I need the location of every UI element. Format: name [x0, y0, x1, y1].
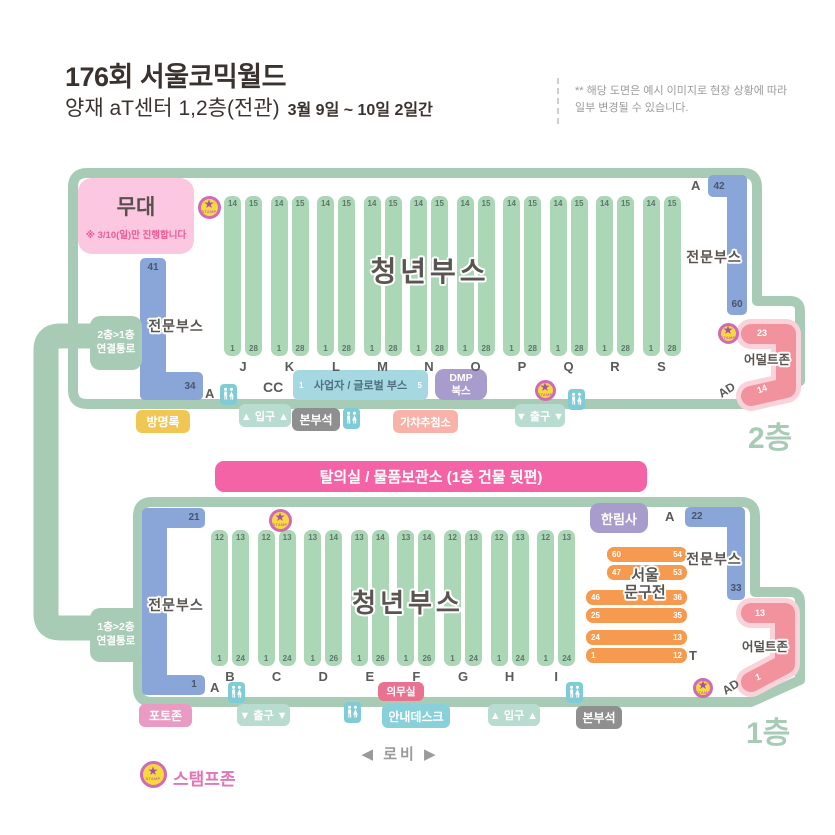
stationery-bar-num-right: 35	[673, 611, 682, 620]
booth-number-bottom: 1	[397, 654, 414, 663]
booth-number-top: 14	[596, 199, 613, 208]
floor2-booth-column-J-right: 1528	[245, 196, 262, 356]
floor1-column-letter-C: C	[258, 669, 296, 684]
floor1-label: 1층	[746, 708, 790, 752]
floor2-column-letter-K: K	[271, 359, 309, 374]
restroom-icon	[220, 384, 237, 405]
booth-number-bottom: 28	[292, 344, 309, 353]
booth-number-top: 15	[571, 199, 588, 208]
booth-number-bottom: 24	[279, 654, 296, 663]
pro-booth-1f-right-top-num: 22	[687, 511, 707, 522]
a-label-1f-left: A	[210, 680, 219, 695]
booth-number-bottom: 28	[524, 344, 541, 353]
floor2-column-letter-N: N	[410, 359, 448, 374]
stationery-bar-num-left: 60	[612, 550, 621, 559]
t-label: T	[689, 648, 697, 663]
booth-number-bottom: 26	[418, 654, 435, 663]
booth-number-top: 14	[372, 533, 389, 542]
booth-number-bottom: 28	[385, 344, 402, 353]
connector-label-1f-to-2f: 1층>2층연결통로	[90, 608, 142, 662]
photo-zone-box: 포토존	[139, 704, 192, 727]
hq-box-2f: 본부석	[292, 408, 340, 431]
floor2-booth-column-S-left: 141	[643, 196, 660, 356]
floor-map-canvas: 176회 서울코믹월드 양재 aT센터 1,2층(전관)3월 9일 ~ 10일 …	[0, 0, 835, 835]
stamp-zone-legend-label: 스탬프존	[173, 765, 236, 790]
stationery-bar-num-left: 24	[591, 633, 600, 642]
stationery-bar-num-right: 13	[673, 633, 682, 642]
booth-number-bottom: 1	[596, 344, 613, 353]
stationery-fair-label: 서울 문구전	[605, 567, 685, 602]
booth-number-bottom: 1	[537, 654, 554, 663]
stamp-star-glyph: ★	[698, 681, 709, 690]
booth-number-top: 13	[512, 533, 529, 542]
booth-number-bottom: 24	[232, 654, 249, 663]
hq-box-1f: 본부석	[576, 706, 622, 729]
restroom-glyph	[345, 410, 358, 427]
booth-number-bottom: 28	[617, 344, 634, 353]
pro-booth-2f-left-top-num: 41	[141, 262, 165, 273]
booth-number-top: 14	[418, 533, 435, 542]
floor1-booth-column-C-left: 121	[258, 530, 275, 666]
floor2-column-letter-P: P	[503, 359, 541, 374]
stage-area: 무대 ※ 3/10(일)만 진행합니다	[78, 178, 194, 254]
booth-number-top: 15	[617, 199, 634, 208]
guestbook-box: 방명록	[136, 410, 190, 433]
stage-label: 무대	[117, 191, 156, 221]
booth-number-top: 15	[524, 199, 541, 208]
pro-booth-1f-right-label: 전문부스	[674, 549, 754, 569]
stamp-word: STAMP	[202, 209, 217, 214]
business-global-booth: 1 사업자 / 글로벌 부스 5	[293, 370, 428, 400]
booth-number-top: 14	[271, 199, 288, 208]
floor1-column-letter-H: H	[491, 669, 529, 684]
lobby-label: ◀ 로비 ▶	[300, 743, 500, 764]
booth-number-top: 14	[317, 199, 334, 208]
stationery-bar-6: 112	[586, 648, 687, 663]
restroom-glyph	[570, 391, 583, 408]
booth-number-top: 15	[664, 199, 681, 208]
booth-number-top: 14	[550, 199, 567, 208]
booth-number-top: 13	[397, 533, 414, 542]
a-label-2f-right: A	[691, 178, 700, 193]
booth-number-top: 15	[431, 199, 448, 208]
connector-label-2f-to-1f: 2층>1층연결통로	[90, 316, 142, 370]
floor1-column-letter-D: D	[304, 669, 342, 684]
notice-line2: 일부 변경될 수 있습니다.	[575, 100, 787, 117]
stationery-bar-num-left: 1	[591, 651, 595, 660]
adult-zone-2f-label: 어덜트존	[736, 349, 798, 368]
booth-number-bottom: 26	[325, 654, 342, 663]
stationery-bar-5: 2413	[586, 630, 687, 645]
stationery-bar-4: 2535	[586, 608, 687, 623]
booth-number-bottom: 28	[478, 344, 495, 353]
booth-number-top: 12	[491, 533, 508, 542]
booth-number-top: 14	[643, 199, 660, 208]
pro-booth-2f-left-label: 전문부스	[136, 316, 216, 336]
booth-number-bottom: 24	[558, 654, 575, 663]
booth-number-top: 14	[503, 199, 520, 208]
a-label-1f-right: A	[665, 509, 674, 524]
booth-number-bottom: 1	[410, 344, 427, 353]
youth-booth-2f-label: 청년부스	[330, 250, 530, 290]
stamp-word: STAMP	[721, 335, 736, 340]
booth-number-bottom: 1	[364, 344, 381, 353]
pro-booth-1f-left-label: 전문부스	[136, 595, 216, 615]
page-title: 176회 서울코믹월드	[65, 55, 286, 94]
booth-number-bottom: 28	[245, 344, 262, 353]
floor2-column-letter-J: J	[224, 359, 262, 374]
pro-booth-2f-right-label: 전문부스	[674, 247, 754, 267]
restroom-icon	[228, 682, 245, 703]
booth-number-top: 14	[364, 199, 381, 208]
date-range: 3월 9일 ~ 10일 2일간	[288, 102, 433, 119]
booth-number-top: 14	[224, 199, 241, 208]
pro-booth-2f-left-bottom-num: 34	[180, 381, 200, 392]
booth-number-bottom: 1	[503, 344, 520, 353]
restroom-glyph	[568, 684, 581, 701]
notice-line1: ** 해당 도면은 예시 이미지로 현장 상황에 따라	[575, 83, 787, 100]
restroom-glyph	[346, 704, 359, 721]
stamp-icon: ★STAMP	[269, 509, 292, 532]
stationery-bar-num-left: 46	[591, 593, 600, 602]
connector-pipe	[46, 336, 112, 628]
booth-number-top: 15	[385, 199, 402, 208]
booth-number-top: 14	[457, 199, 474, 208]
floor2-booth-column-S-right: 1528	[664, 196, 681, 356]
booth-number-bottom: 1	[304, 654, 321, 663]
floor2-booth-column-K-right: 1528	[292, 196, 309, 356]
youth-booth-1f-label: 청년부스	[308, 583, 508, 620]
adult-zone-1f-top-num: 13	[750, 608, 770, 618]
stamp-icon: ★STAMP	[718, 323, 739, 344]
booth-number-top: 13	[465, 533, 482, 542]
page-subtitle: 양재 aT센터 1,2층(전관)3월 9일 ~ 10일 2일간	[65, 92, 433, 122]
pro-booth-1f-left-bottom-num: 1	[187, 679, 201, 690]
pro-booth-2f-right-bottom-num: 60	[727, 299, 747, 310]
booth-number-bottom: 1	[643, 344, 660, 353]
medical-room-box: 의무실	[378, 682, 424, 701]
floor2-label: 2층	[748, 413, 792, 457]
pro-booth-1f-right-bottom-num: 33	[726, 583, 746, 594]
booth-number-bottom: 1	[550, 344, 567, 353]
pro-booth-2f-right-bar	[727, 175, 747, 315]
stamp-icon: ★STAMP	[693, 678, 713, 698]
floor2-booth-column-R-right: 1528	[617, 196, 634, 356]
booth-number-top: 13	[279, 533, 296, 542]
booth-number-top: 12	[537, 533, 554, 542]
stamp-star-glyph: ★	[275, 513, 286, 522]
floor1-column-letter-F: F	[397, 669, 435, 684]
booth-number-bottom: 24	[512, 654, 529, 663]
stamp-star-glyph: ★	[204, 200, 215, 209]
exit-box-1f: ▼ 출구 ▼	[237, 704, 290, 726]
floor2-column-letter-O: O	[457, 359, 495, 374]
stamp-icon: ★STAMP	[140, 761, 167, 788]
booth-number-bottom: 28	[571, 344, 588, 353]
exit-box-2f: ▼ 출구 ▼	[515, 404, 565, 427]
cc-label: CC	[263, 379, 283, 395]
stage-note: ※ 3/10(일)만 진행합니다	[86, 227, 187, 241]
stamp-word: STAMP	[273, 522, 288, 527]
floor1-booth-column-C-right: 1324	[279, 530, 296, 666]
booth-number-top: 13	[558, 533, 575, 542]
stamp-icon: ★STAMP	[198, 196, 221, 219]
adult-zone-1f-label: 어덜트존	[734, 636, 796, 655]
restroom-glyph	[222, 386, 235, 403]
booth-number-bottom: 28	[431, 344, 448, 353]
floor2-column-letter-M: M	[364, 359, 402, 374]
floor2-booth-column-K-left: 141	[271, 196, 288, 356]
adult-zone-2f-top-num: 23	[752, 328, 772, 338]
booth-number-bottom: 1	[351, 654, 368, 663]
floor1-booth-column-I-left: 121	[537, 530, 554, 666]
floor2-column-letter-S: S	[643, 359, 681, 374]
restroom-icon	[568, 389, 585, 410]
restroom-icon	[344, 702, 361, 723]
floor1-column-letter-G: G	[444, 669, 482, 684]
booth-number-top: 15	[338, 199, 355, 208]
floor2-booth-column-Q-left: 141	[550, 196, 567, 356]
changing-storage-banner: 탈의실 / 물품보관소 (1층 건물 뒷편)	[215, 461, 647, 492]
booth-number-bottom: 1	[224, 344, 241, 353]
stamp-star-glyph: ★	[723, 326, 734, 335]
gacha-box: 가챠추첨소	[393, 410, 458, 433]
booth-number-top: 13	[232, 533, 249, 542]
notice-divider	[557, 78, 559, 124]
pro-booth-1f-left-top-num: 21	[185, 512, 203, 523]
booth-number-bottom: 26	[372, 654, 389, 663]
floor2-column-letter-R: R	[596, 359, 634, 374]
business-booth-num-right: 5	[418, 370, 422, 400]
floor2-booth-column-J-left: 141	[224, 196, 241, 356]
pro-booth-2f-right-top-num: 42	[708, 181, 730, 192]
hallimsa-booth: 한림사	[590, 503, 648, 533]
booth-number-top: 12	[444, 533, 461, 542]
booth-number-top: 13	[351, 533, 368, 542]
booth-number-top: 14	[410, 199, 427, 208]
entrance-box-1f: ▲ 입구 ▲	[488, 704, 540, 726]
booth-number-top: 15	[245, 199, 262, 208]
booth-number-top: 13	[304, 533, 321, 542]
booth-number-bottom: 1	[271, 344, 288, 353]
booth-number-top: 12	[211, 533, 228, 542]
entrance-box-2f: ▲ 입구 ▲	[239, 404, 291, 427]
info-desk-box: 안내데스크	[382, 704, 450, 728]
booth-number-bottom: 1	[491, 654, 508, 663]
booth-number-bottom: 1	[444, 654, 461, 663]
booth-number-bottom: 1	[457, 344, 474, 353]
booth-number-top: 14	[325, 533, 342, 542]
floor2-column-letter-L: L	[317, 359, 355, 374]
booth-number-bottom: 24	[465, 654, 482, 663]
booth-number-top: 15	[292, 199, 309, 208]
stamp-word: STAMP	[146, 776, 161, 781]
stamp-star-glyph: ★	[540, 383, 551, 392]
business-booth-num-left: 1	[299, 370, 303, 400]
stamp-icon: ★STAMP	[535, 380, 556, 401]
stationery-bar-num-right: 12	[673, 651, 682, 660]
floor2-booth-column-Q-right: 1528	[571, 196, 588, 356]
restroom-icon	[343, 408, 360, 429]
booth-number-bottom: 1	[317, 344, 334, 353]
booth-number-bottom: 28	[338, 344, 355, 353]
booth-number-top: 12	[258, 533, 275, 542]
notice-text: ** 해당 도면은 예시 이미지로 현장 상황에 따라 일부 변경될 수 있습니…	[575, 83, 787, 117]
booth-number-top: 15	[478, 199, 495, 208]
restroom-icon	[566, 682, 583, 703]
a-label-2f-left: A	[205, 386, 214, 401]
floor2-column-letter-Q: Q	[550, 359, 588, 374]
booth-number-bottom: 28	[664, 344, 681, 353]
stamp-word: STAMP	[696, 690, 711, 695]
restroom-glyph	[230, 684, 243, 701]
booth-number-bottom: 1	[211, 654, 228, 663]
stamp-word: STAMP	[538, 392, 553, 397]
floor1-booth-column-B-right: 1324	[232, 530, 249, 666]
floor2-booth-column-R-left: 141	[596, 196, 613, 356]
booth-number-bottom: 1	[258, 654, 275, 663]
floor1-column-letter-E: E	[351, 669, 389, 684]
floor1-booth-column-H-right: 1324	[512, 530, 529, 666]
venue-label: 양재 aT센터 1,2층(전관)	[65, 97, 280, 120]
stamp-star-glyph: ★	[148, 767, 159, 776]
floor1-booth-column-I-right: 1324	[558, 530, 575, 666]
stationery-bar-num-left: 25	[591, 611, 600, 620]
